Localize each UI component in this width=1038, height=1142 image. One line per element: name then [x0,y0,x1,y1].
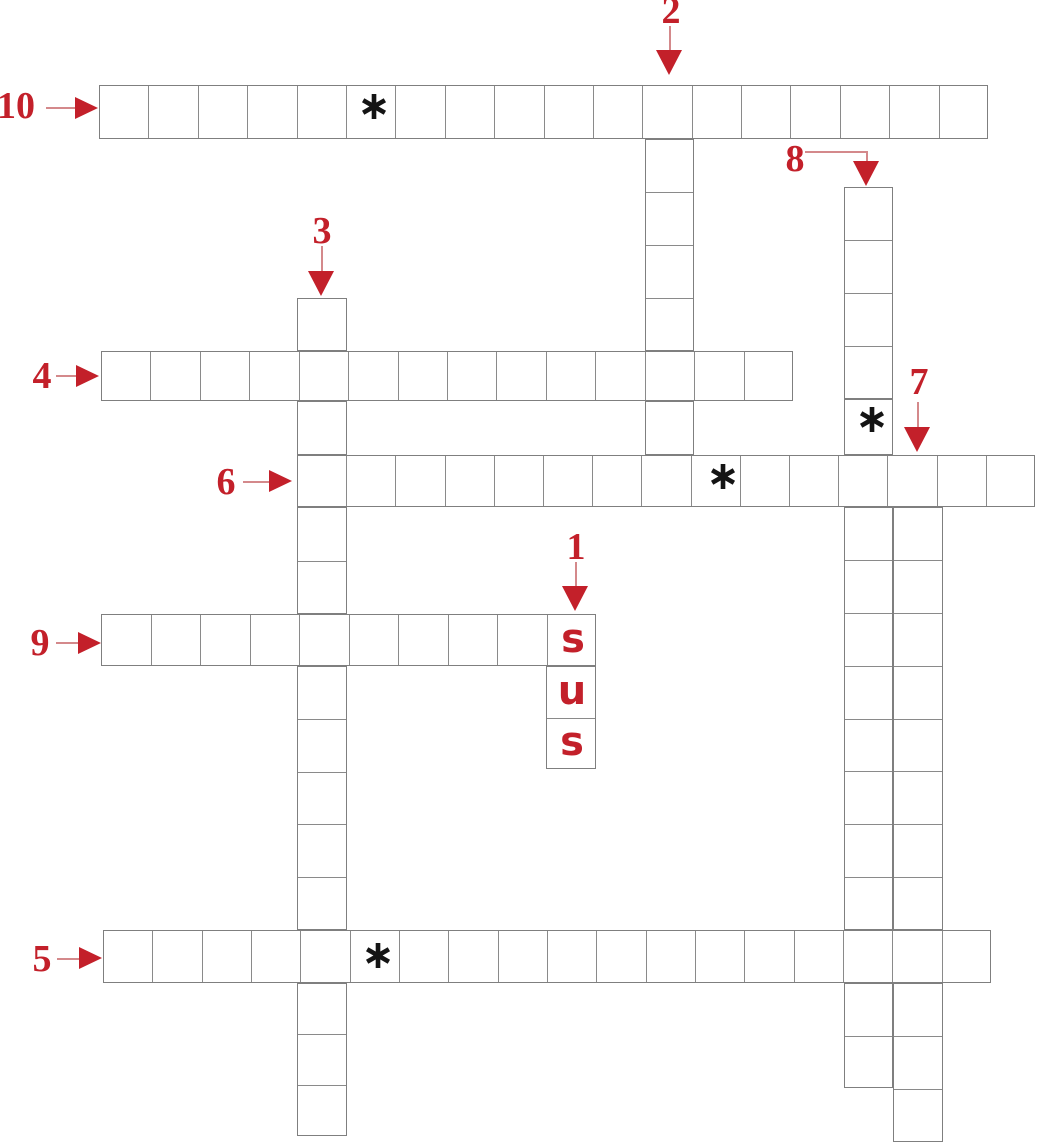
cell-divider [445,86,446,138]
cell-divider [741,86,742,138]
clue-number-9: 9 [31,624,50,662]
cell-divider [894,877,942,878]
clue-number-10: 10 [0,87,35,125]
cell-divider [892,931,893,982]
cell-divider [937,456,938,506]
cell-divider [894,1036,942,1037]
cell-divider [845,240,892,241]
cell-divider [894,824,942,825]
cell-divider [646,298,693,299]
word-3d-cells[interactable] [297,666,347,930]
word-3b-cells[interactable] [297,401,347,455]
cell-divider [645,352,646,400]
clue-arrow-8-line [805,151,866,153]
cell-divider [692,86,693,138]
cell-divider [350,931,351,982]
cell-divider [445,456,446,506]
cell-divider [200,615,201,665]
clue-number-8: 8 [786,140,805,178]
clue-number-5: 5 [33,940,52,978]
cell-divider [790,86,791,138]
cell-divider [247,86,248,138]
cell-divider [546,352,547,400]
clue-arrow-7-line [917,402,919,430]
star-mark: ∗ [361,935,395,975]
cell-divider [298,1034,346,1035]
clue-number-7: 7 [910,363,929,401]
clue-arrow-10-line [46,107,77,109]
cell-divider [395,86,396,138]
cell-divider [448,931,449,982]
cell-divider [498,931,499,982]
cell-divider [646,245,693,246]
cell-divider [845,293,892,294]
cell-divider [646,931,647,982]
cell-divider [845,719,892,720]
prefilled-letter: s [560,722,584,762]
cell-divider [298,877,346,878]
cell-divider [299,352,300,400]
cell-divider [986,456,987,506]
cell-divider [547,615,548,665]
word-7b-cells[interactable] [893,983,943,1142]
cell-divider [399,931,400,982]
cell-divider [894,560,942,561]
cell-divider [348,352,349,400]
cell-divider [843,931,844,982]
word-6-cells[interactable] [297,455,1035,507]
star-mark: ∗ [706,456,740,496]
cell-divider [845,613,892,614]
cell-divider [646,192,693,193]
cell-divider [198,86,199,138]
cell-divider [642,86,643,138]
crossword-grid: 12345678910∗∗∗∗sus [0,0,1038,1142]
cell-divider [894,666,942,667]
cell-divider [494,86,495,138]
cell-divider [448,615,449,665]
star-mark: ∗ [855,399,889,439]
prefilled-letter: s [561,619,585,659]
cell-divider [845,824,892,825]
cell-divider [497,615,498,665]
clue-arrow-4-head [76,365,99,387]
clue-number-2: 2 [662,0,681,30]
cell-divider [250,615,251,665]
cell-divider [845,771,892,772]
cell-divider [202,931,203,982]
cell-divider [889,86,890,138]
cell-divider [894,771,942,772]
cell-divider [349,615,350,665]
word-3a-cells[interactable] [297,298,347,351]
cell-divider [887,456,888,506]
clue-arrow-1-head [562,586,588,611]
cell-divider [251,931,252,982]
cell-divider [691,456,692,506]
cell-divider [838,456,839,506]
clue-arrow-3-head [308,271,334,296]
clue-number-1: 1 [567,528,586,566]
cell-divider [845,666,892,667]
cell-divider [152,931,153,982]
cell-divider [298,719,346,720]
cell-divider [845,346,892,347]
cell-divider [744,352,745,400]
clue-arrow-10-head [75,97,98,119]
clue-arrow-9-line [56,642,79,644]
cell-divider [398,615,399,665]
cell-divider [789,456,790,506]
cell-divider [298,561,346,562]
clue-arrow-9-head [78,632,101,654]
cell-divider [595,352,596,400]
cell-divider [547,931,548,982]
prefilled-letter: u [558,671,586,711]
word-2b-cells[interactable] [645,401,694,455]
clue-arrow-7-head [904,427,930,452]
clue-arrow-6-head [269,470,292,492]
cell-divider [395,456,396,506]
clue-number-4: 4 [33,357,52,395]
clue-arrow-2-line [669,26,671,52]
cell-divider [398,352,399,400]
cell-divider [298,772,346,773]
cell-divider [249,352,250,400]
clue-number-3: 3 [313,212,332,250]
cell-divider [346,86,347,138]
cell-divider [641,456,642,506]
cell-divider [300,931,301,982]
cell-divider [299,615,300,665]
cell-divider [840,86,841,138]
cell-divider [845,1036,892,1037]
clue-arrow-4-line [56,375,78,377]
cell-divider [494,456,495,506]
cell-divider [593,86,594,138]
cell-divider [845,877,892,878]
clue-arrow-1-line [575,562,577,588]
cell-divider [695,931,696,982]
cell-divider [894,1089,942,1090]
star-mark: ∗ [357,86,391,126]
cell-divider [298,1085,346,1086]
cell-divider [298,824,346,825]
cell-divider [297,86,298,138]
clue-arrow-3-line [321,246,323,273]
cell-divider [150,352,151,400]
cell-divider [845,560,892,561]
cell-divider [894,613,942,614]
clue-arrow-2-head [656,50,682,75]
word-3e-cells[interactable] [297,983,347,1136]
cell-divider [894,719,942,720]
cell-divider [939,86,940,138]
cell-divider [694,352,695,400]
cell-divider [148,86,149,138]
clue-number-6: 6 [217,463,236,501]
cell-divider [744,931,745,982]
cell-divider [740,456,741,506]
cell-divider [596,931,597,982]
cell-divider [942,931,943,982]
cell-divider [447,352,448,400]
cell-divider [151,615,152,665]
cell-divider [544,86,545,138]
cell-divider [200,352,201,400]
cell-divider [543,456,544,506]
clue-arrow-5-head [79,947,102,969]
cell-divider [794,931,795,982]
clue-arrow-6-line [243,481,270,483]
cell-divider [592,456,593,506]
clue-arrow-5-line [57,958,81,960]
cell-divider [346,456,347,506]
cell-divider [496,352,497,400]
clue-arrow-8-head [853,161,879,186]
